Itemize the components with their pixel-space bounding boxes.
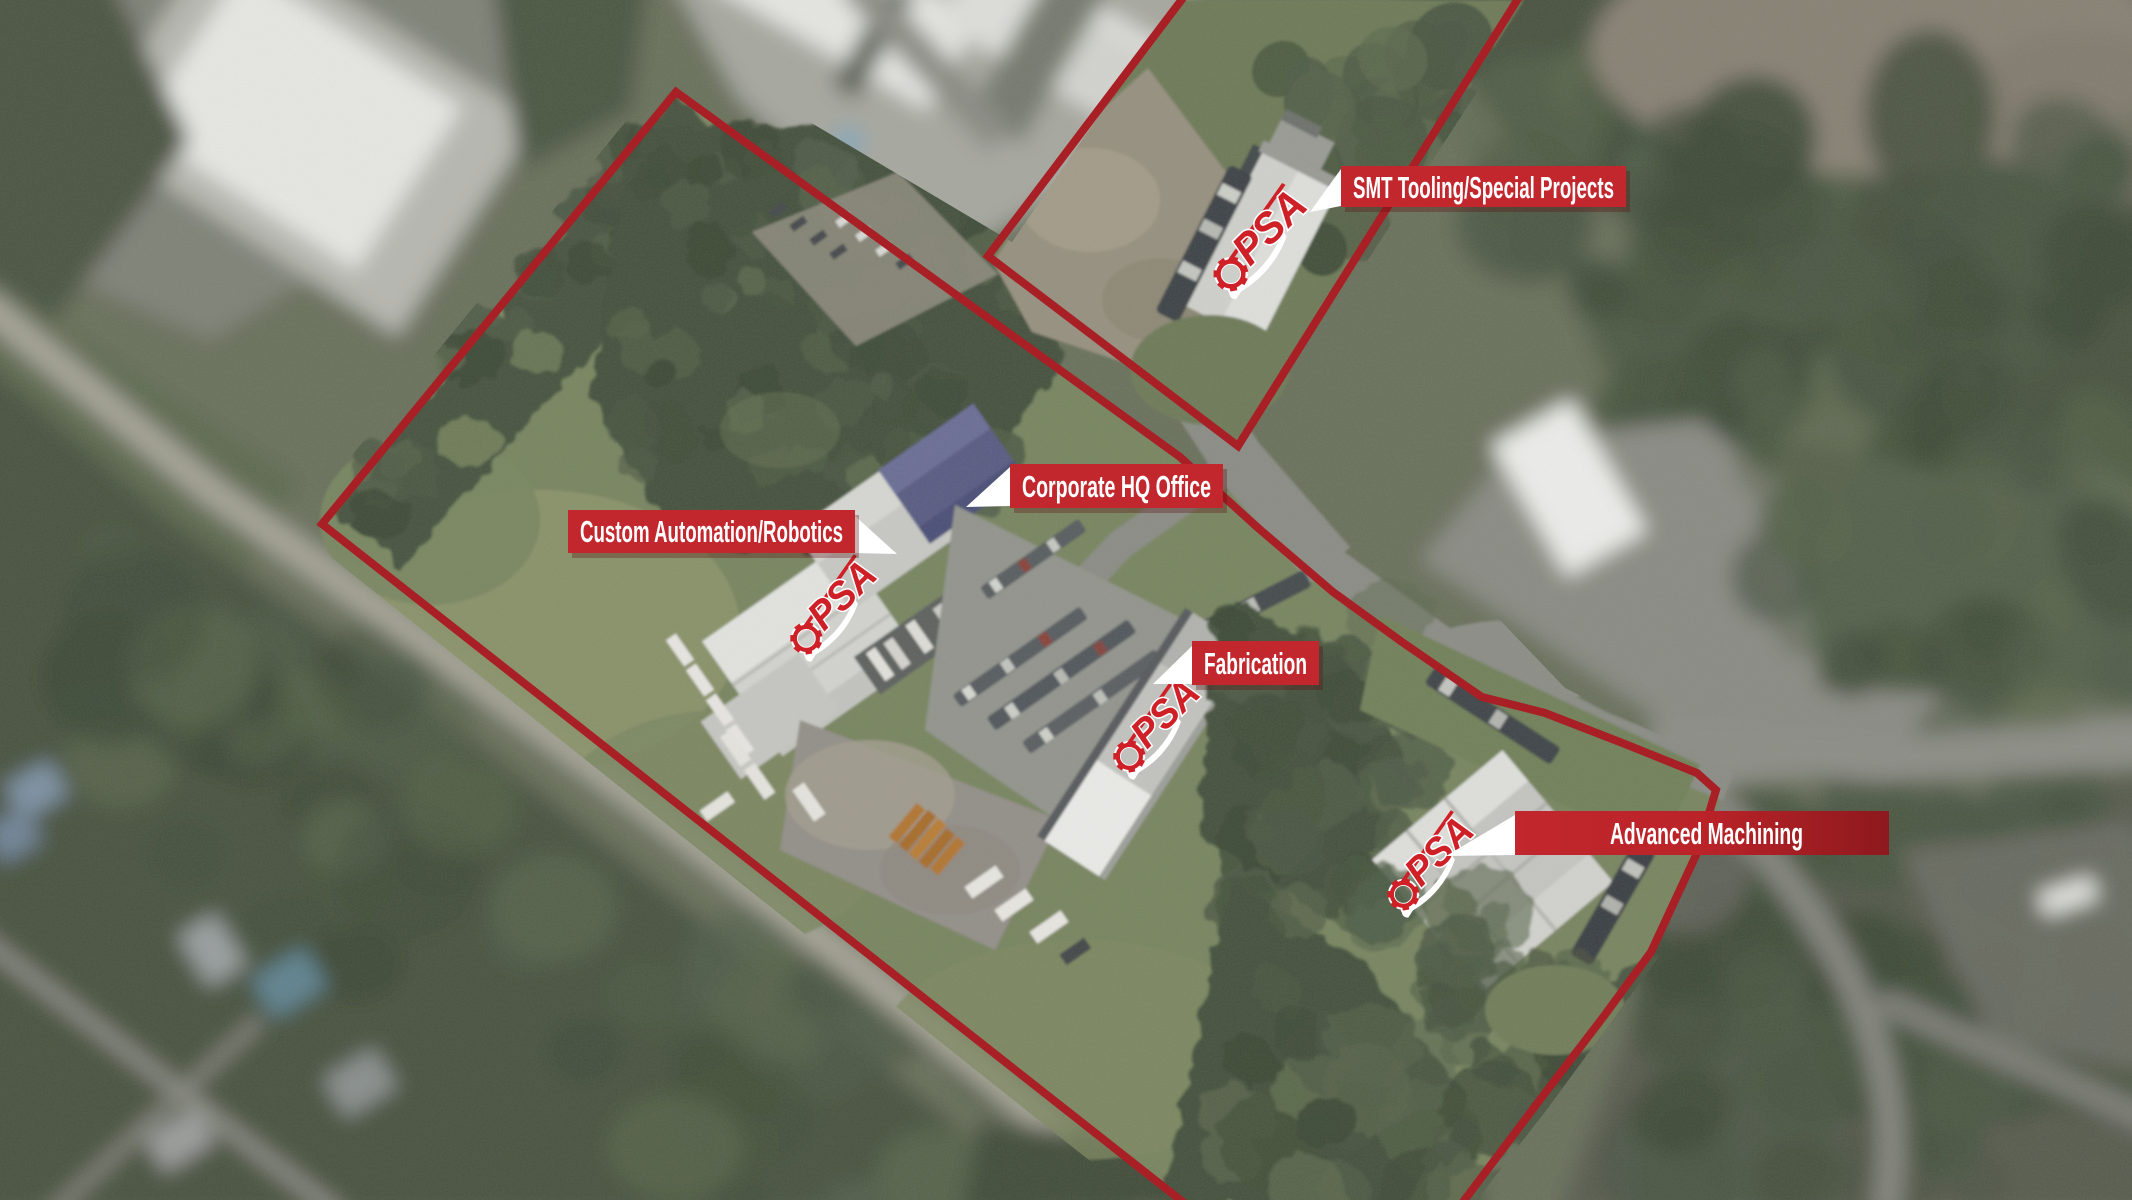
svg-text:Corporate HQ Office: Corporate HQ Office xyxy=(1022,469,1211,504)
svg-text:Advanced Machining: Advanced Machining xyxy=(1610,816,1803,851)
svg-text:SMT Tooling/Special Projects: SMT Tooling/Special Projects xyxy=(1353,170,1614,205)
svg-text:Custom Automation/Robotics: Custom Automation/Robotics xyxy=(580,514,843,549)
svg-text:Fabrication: Fabrication xyxy=(1204,646,1307,681)
